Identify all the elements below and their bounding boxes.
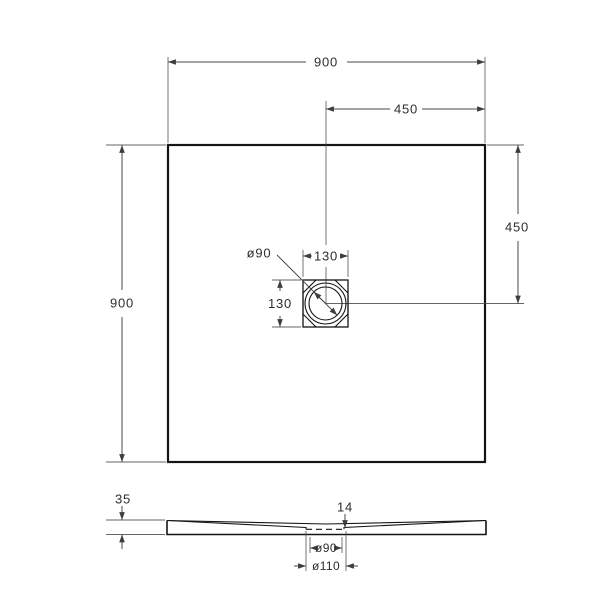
dim-section-drain: ø90 <box>310 537 342 555</box>
drain-diameter-label: ø90 <box>247 246 272 261</box>
dim-plan-height: 900 <box>106 145 166 462</box>
plan-width-label: 900 <box>314 55 338 70</box>
dim-plan-width: 900 <box>168 55 485 144</box>
plan-half-width-label: 450 <box>394 102 418 117</box>
drain-height-label: 130 <box>268 296 292 311</box>
section-view: 35 14 ø90 ø110 <box>106 492 486 574</box>
plan-view: 900 450 900 450 <box>106 55 529 463</box>
dim-plan-half-height: 450 <box>487 145 529 304</box>
section-drain-label: ø90 <box>315 541 337 555</box>
drawing-canvas: 900 450 900 450 <box>0 0 600 600</box>
dim-section-thickness: 35 <box>106 492 165 550</box>
plan-height-label: 900 <box>110 296 134 311</box>
drain-width-label: 130 <box>314 249 338 264</box>
drain-diameter-arrow <box>314 292 326 304</box>
technical-drawing: 900 450 900 450 <box>0 0 600 600</box>
dim-plan-half-width: 450 <box>326 102 485 117</box>
section-top-edge <box>167 521 486 525</box>
dim-drain-height: 130 <box>268 280 301 327</box>
section-flange-label: ø110 <box>312 559 340 573</box>
section-thickness-label: 35 <box>115 492 131 507</box>
plan-half-height-label: 450 <box>505 220 529 235</box>
section-offset-label: 14 <box>337 500 353 515</box>
dim-drain-width: 130 <box>303 249 348 278</box>
